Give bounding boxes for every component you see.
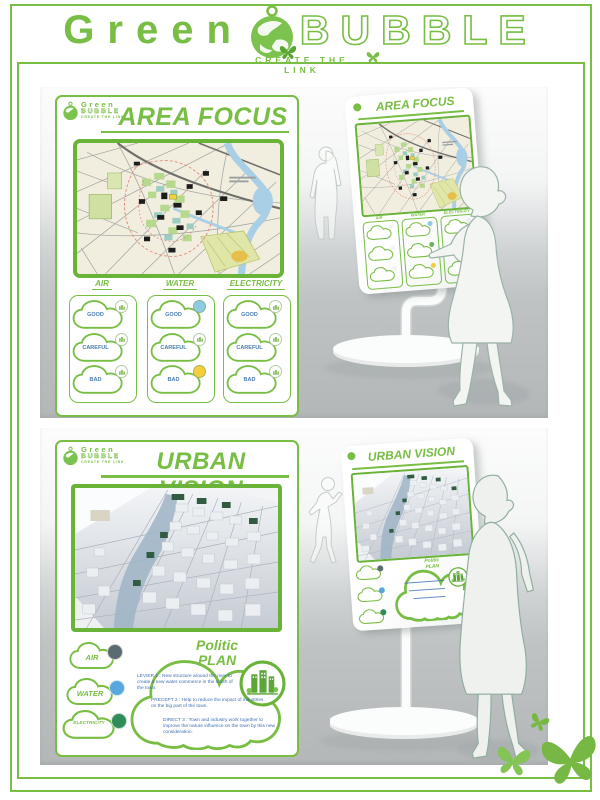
area-focus-title: AREA FOCUS	[115, 103, 291, 132]
cloud-careful: CAREFUL	[150, 333, 207, 364]
cloud-water: WATER	[66, 678, 114, 706]
cloud-label: BAD	[226, 377, 273, 383]
brand-tagline: CREATE THE LINK	[238, 55, 366, 75]
status-dot	[379, 587, 385, 593]
cloud-label: GOOD	[72, 312, 119, 318]
status-badge	[193, 333, 206, 346]
status-badge	[193, 300, 206, 313]
kiosk-column-air	[362, 219, 403, 290]
city-model-image	[71, 484, 282, 632]
title-underline	[101, 475, 289, 478]
cloud-label: ELECTRICITY	[62, 721, 116, 726]
cloud-careful: CAREFUL	[226, 333, 283, 364]
plan-item-3: DIRECT 3 : Town and industry work togeth…	[163, 718, 275, 737]
status-dot	[390, 245, 395, 250]
title-underline	[101, 131, 289, 134]
urban-vision-scene: URBAN VISION PoliticPLAN	[40, 428, 548, 765]
status-dot	[380, 609, 386, 615]
poster-area-focus: Green BUBBLE CREATE THE LINK AREA FOCUS …	[55, 95, 299, 417]
butterfly-icon	[541, 735, 596, 785]
cloud-careful: CAREFUL	[72, 333, 129, 364]
brand-word-green: Green	[63, 4, 244, 56]
status-badge	[269, 333, 282, 346]
status-badge	[115, 333, 128, 346]
building-icon	[272, 303, 280, 311]
globe-icon	[353, 103, 362, 112]
globe-icon	[62, 446, 79, 466]
plan-item-2: PRECEPT 2 : Help to reduce the impact of…	[151, 698, 269, 710]
brand-word-bubble: BUBBLE	[300, 4, 537, 56]
status-dot	[392, 266, 397, 271]
status-dot	[389, 224, 394, 229]
status-badge	[115, 300, 128, 313]
cloud-label: GOOD	[150, 312, 197, 318]
column-label-electricity: ELECTRICITY	[223, 279, 289, 290]
cloud-bad: BAD	[150, 365, 207, 396]
building-icon	[118, 303, 126, 311]
building-icon	[272, 368, 280, 376]
poster-urban-vision: Green BUBBLE CREATE THE LINK URBAN VISIO…	[55, 440, 299, 757]
column-label-water: WATER	[147, 279, 213, 290]
cloud-label: BAD	[150, 377, 197, 383]
building-icon	[272, 335, 280, 343]
building-icon	[196, 335, 204, 343]
cloud-good: GOOD	[150, 300, 207, 331]
person-outline-man	[301, 143, 351, 241]
cloud-label: BAD	[72, 377, 119, 383]
cloud-label: CAREFUL	[226, 345, 273, 351]
column-air: GOOD CAREFUL BAD	[69, 295, 137, 403]
status-badge	[269, 300, 282, 313]
butterflies-decoration	[492, 700, 596, 792]
cloud-good: GOOD	[72, 300, 129, 331]
status-badge	[115, 365, 128, 378]
cloud-good: GOOD	[226, 300, 283, 331]
cloud-label: CAREFUL	[150, 345, 197, 351]
building-icon	[118, 368, 126, 376]
globe-icon	[347, 452, 356, 461]
brand-logo: Green BUBBLE	[0, 4, 600, 60]
butterfly-icon	[495, 746, 531, 776]
person-silhouette-woman	[425, 158, 548, 416]
globe-icon	[246, 4, 298, 60]
area-map-image	[73, 139, 284, 278]
status-dot	[377, 565, 383, 571]
cloud-electricity: ELECTRICITY	[62, 710, 116, 740]
globe-icon	[62, 101, 79, 121]
cloud-label: CAREFUL	[72, 345, 119, 351]
column-water: GOOD CAREFUL BAD	[147, 295, 215, 403]
building-icon	[118, 335, 126, 343]
cloud-bad: BAD	[226, 365, 283, 396]
plan-item-1: LEVIER 1 : New structure around the rive…	[137, 674, 237, 693]
butterfly-icon	[366, 49, 380, 63]
status-badge	[193, 365, 206, 378]
butterfly-icon	[528, 712, 550, 732]
column-electricity: GOOD CAREFUL BAD	[223, 295, 291, 403]
cloud-bad: BAD	[72, 365, 129, 396]
poster-page: Green BUBBLE CREATE THE LINK	[0, 0, 600, 800]
cloud-label: GOOD	[226, 312, 273, 318]
status-badge	[269, 365, 282, 378]
cloud-label: WATER	[66, 689, 114, 698]
column-label-air: AIR	[69, 279, 135, 290]
air-status-dot	[107, 644, 123, 660]
area-focus-scene: AREA FOCUS AIR WATER ELECTRICITY	[40, 87, 548, 418]
